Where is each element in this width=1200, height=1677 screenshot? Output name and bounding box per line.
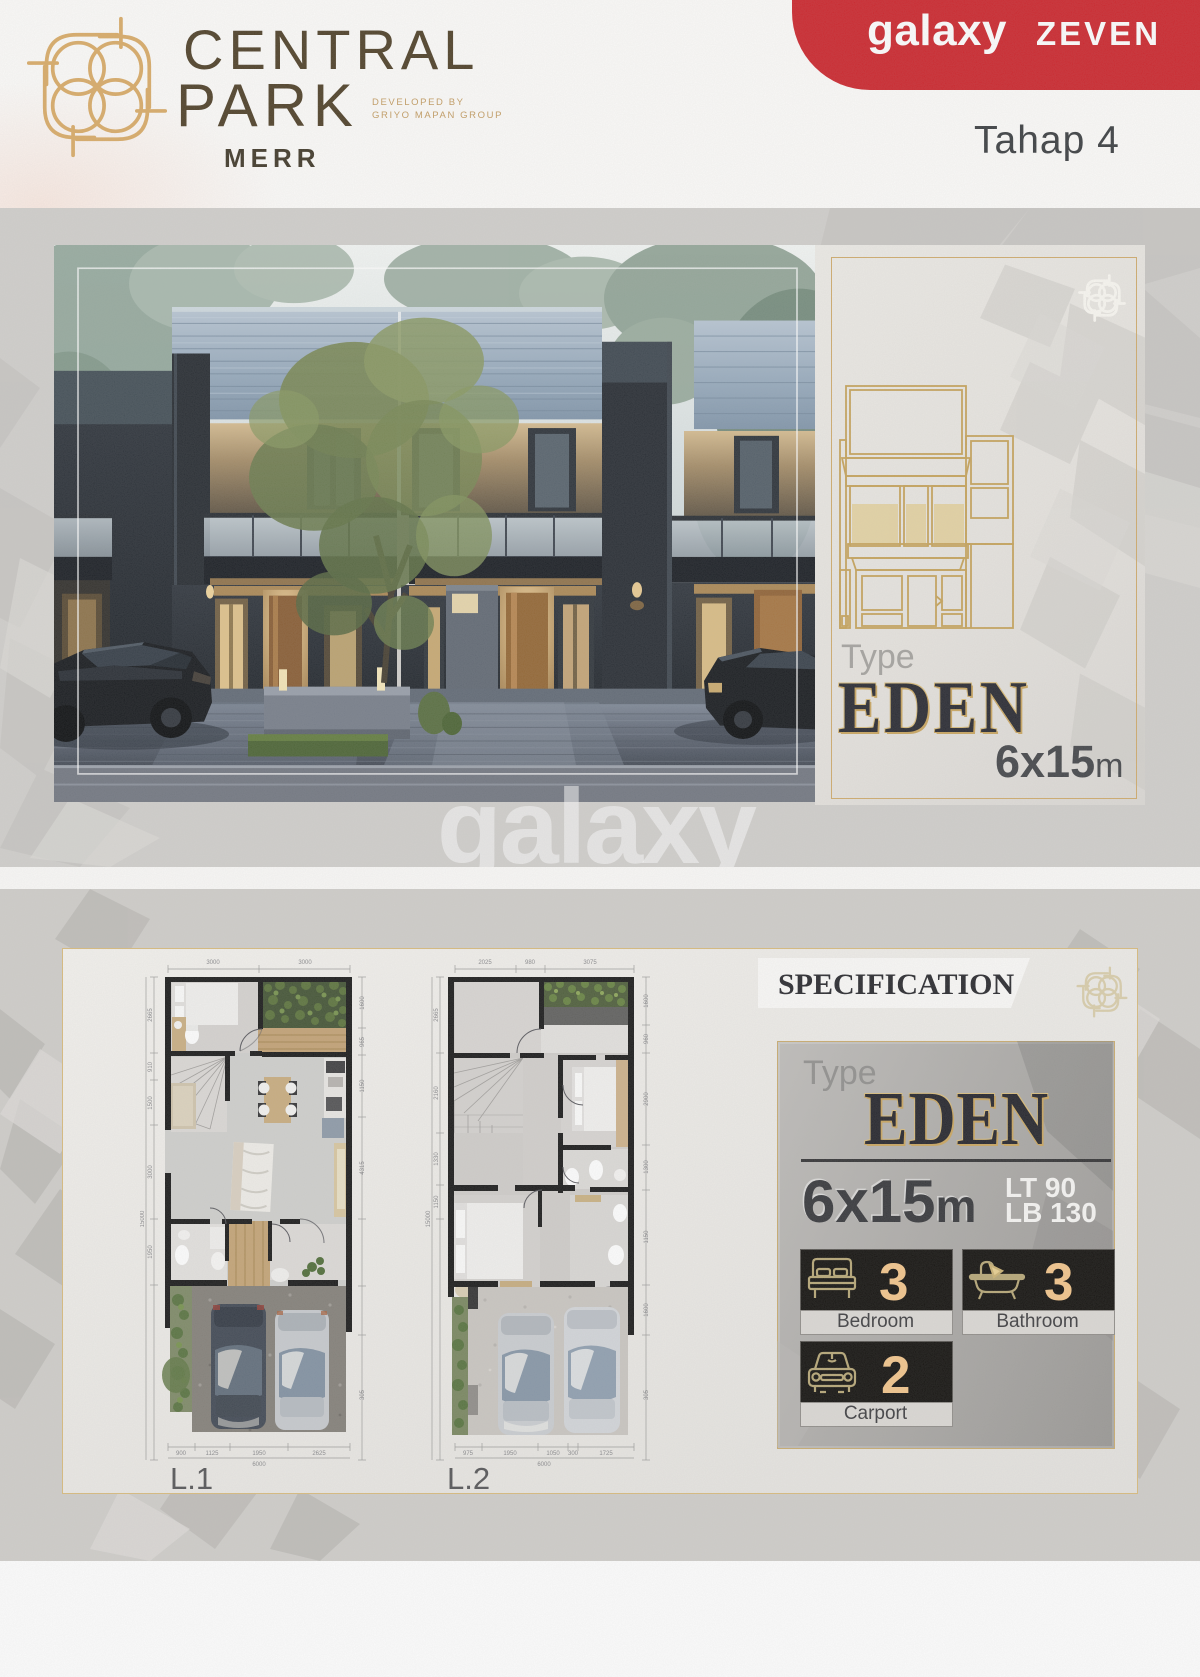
- svg-text:3075: 3075: [583, 960, 597, 966]
- svg-text:6000: 6000: [537, 1462, 551, 1468]
- svg-text:3000: 3000: [298, 960, 312, 966]
- svg-text:980: 980: [525, 960, 536, 966]
- svg-text:3000: 3000: [206, 960, 220, 966]
- svg-text:1050: 1050: [546, 1451, 560, 1457]
- svg-text:1600: 1600: [644, 994, 650, 1008]
- svg-text:15000: 15000: [140, 1210, 146, 1227]
- svg-text:2160: 2160: [434, 1086, 440, 1100]
- svg-text:1725: 1725: [599, 1451, 613, 1457]
- svg-text:6000: 6000: [252, 1462, 266, 1468]
- svg-text:1950: 1950: [252, 1451, 266, 1457]
- svg-text:1500: 1500: [148, 1096, 154, 1110]
- svg-text:2665: 2665: [148, 1008, 154, 1022]
- svg-text:1125: 1125: [206, 1451, 220, 1457]
- svg-text:1300: 1300: [644, 1160, 650, 1174]
- svg-text:4315: 4315: [360, 1161, 366, 1175]
- svg-text:300: 300: [568, 1451, 579, 1457]
- svg-text:305: 305: [644, 1389, 650, 1400]
- svg-text:305: 305: [360, 1389, 366, 1400]
- svg-text:2900: 2900: [644, 1092, 650, 1106]
- svg-text:1330: 1330: [434, 1152, 440, 1166]
- svg-text:960: 960: [644, 1033, 650, 1044]
- svg-text:1950: 1950: [503, 1451, 517, 1457]
- svg-text:1950: 1950: [148, 1245, 154, 1259]
- svg-text:1600: 1600: [360, 996, 366, 1010]
- svg-text:900: 900: [176, 1451, 187, 1457]
- svg-text:1150: 1150: [434, 1195, 440, 1209]
- svg-text:3000: 3000: [148, 1165, 154, 1179]
- svg-text:15000: 15000: [426, 1210, 432, 1227]
- svg-text:1600: 1600: [644, 1303, 650, 1317]
- svg-text:910: 910: [148, 1061, 154, 1072]
- svg-text:2625: 2625: [312, 1451, 326, 1457]
- svg-text:1150: 1150: [360, 1079, 366, 1093]
- svg-text:1150: 1150: [644, 1230, 650, 1244]
- svg-text:2025: 2025: [478, 960, 492, 966]
- svg-text:2665: 2665: [434, 1008, 440, 1022]
- svg-text:975: 975: [463, 1451, 474, 1457]
- svg-text:965: 965: [360, 1036, 366, 1047]
